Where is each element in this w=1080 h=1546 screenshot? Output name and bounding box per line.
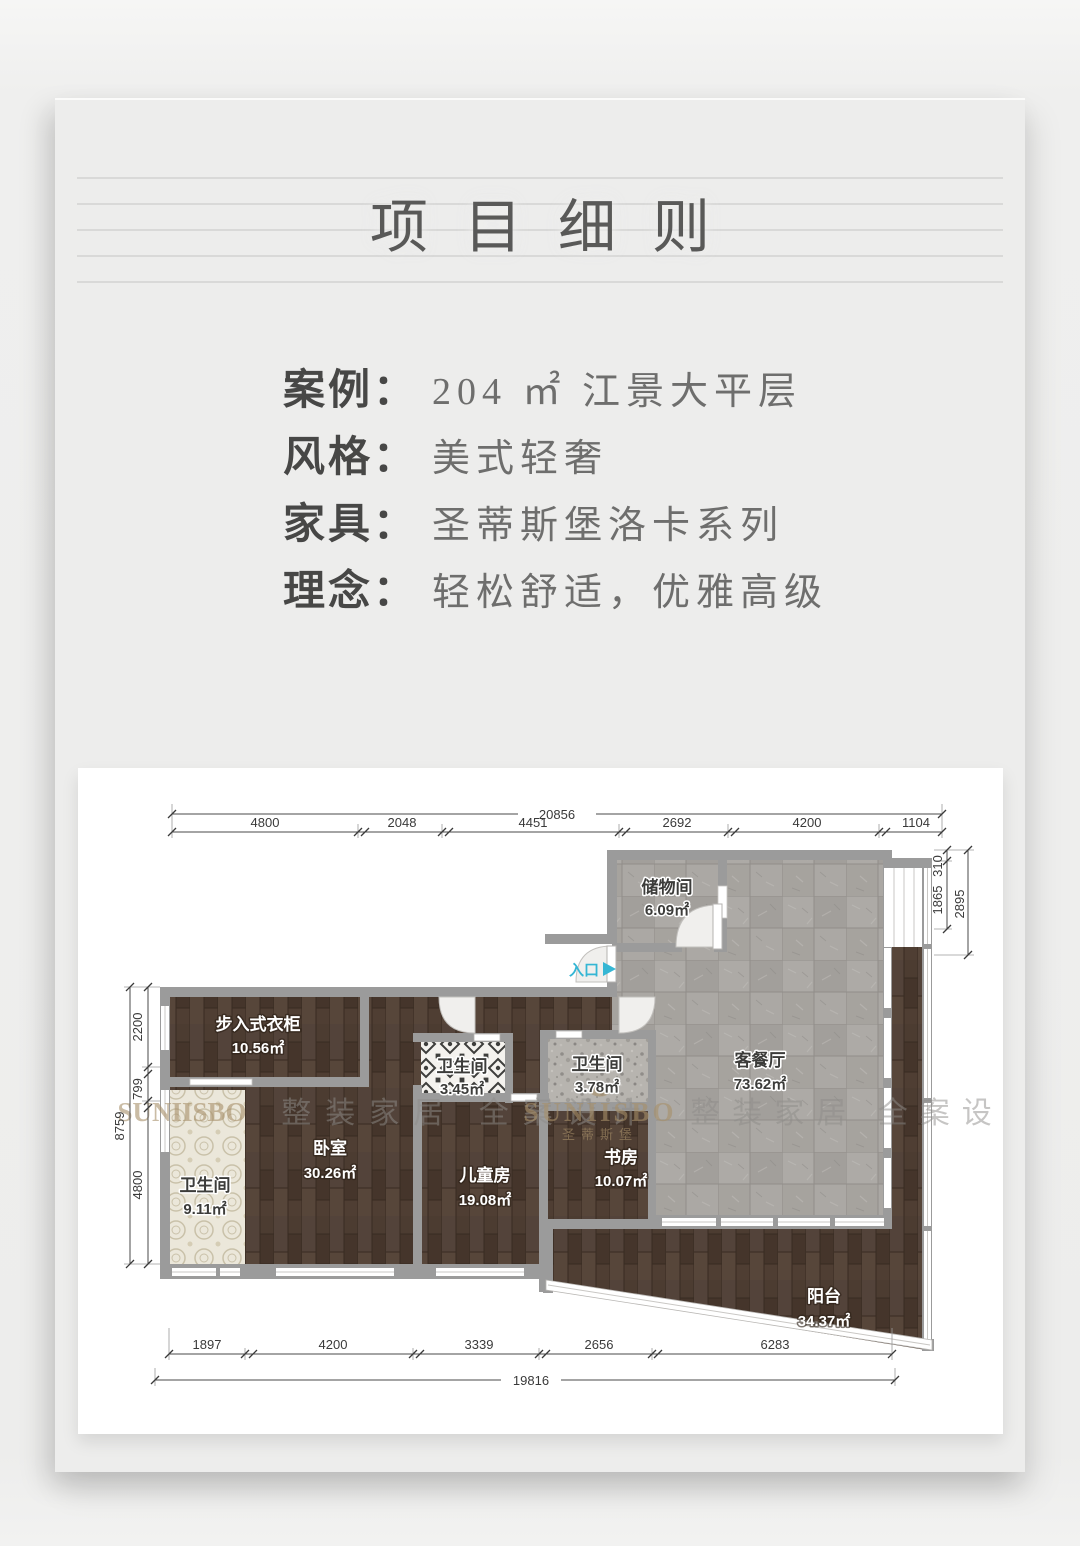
dim-bottom-seg: 2656 — [585, 1337, 614, 1352]
dim-top-seg: 2692 — [663, 815, 692, 830]
room-label-storage: 储物间 — [642, 877, 693, 897]
room-label-bath-small: 卫生间 — [437, 1056, 488, 1076]
info-row-concept: 理念： 轻松舒适，优雅高级 — [283, 567, 828, 619]
room-area-balcony: 34.37㎡ — [798, 1312, 851, 1330]
room-label-closet: 步入式衣柜 — [216, 1014, 301, 1034]
room-area-bath-master: 9.11㎡ — [183, 1200, 226, 1218]
watermark-brand-cn: 圣蒂斯堡 — [562, 1127, 638, 1142]
room-label-living: 客餐厅 — [734, 1050, 786, 1070]
dim-bottom: 1897 4200 3339 2656 6283 19816 — [151, 1328, 899, 1388]
room-area-bedroom: 30.26㎡ — [304, 1164, 357, 1182]
dim-left-seg: 799 — [130, 1078, 145, 1100]
room-area-study: 10.07㎡ — [595, 1172, 648, 1190]
info-label: 家具： — [283, 500, 418, 551]
dim-left-seg: 4800 — [130, 1171, 145, 1200]
dim-left-seg: 2200 — [130, 1013, 145, 1042]
dim-top-seg: 4200 — [793, 815, 822, 830]
info-row-furniture: 家具： 圣蒂斯堡洛卡系列 — [283, 500, 828, 552]
info-value: 204 ㎡ 江景大平层 — [432, 367, 802, 418]
room-label-bedroom: 卧室 — [313, 1138, 347, 1158]
room-area-bath-mid: 3.78㎡ — [575, 1078, 619, 1096]
dim-right: 310 1865 2895 — [930, 846, 974, 959]
page-title: 项目细则 — [55, 180, 1025, 264]
room-label-bath-master: 卫生间 — [180, 1175, 231, 1195]
dim-bottom-seg: 3339 — [465, 1337, 494, 1352]
floor-plan: SUNIISBO 整装家居 全案设计 SUNIISBO 圣蒂斯堡 整装家居 全案… — [78, 768, 1003, 1434]
info-value: 美式轻奢 — [432, 434, 608, 485]
info-row-style: 风格： 美式轻奢 — [283, 433, 828, 485]
watermark-brand-center: SUNIISBO — [523, 1097, 676, 1127]
entrance-label: 入口 — [569, 962, 599, 979]
room-area-kids: 19.08㎡ — [459, 1191, 512, 1209]
project-info: 案例： 204 ㎡ 江景大平层 风格： 美式轻奢 家具： 圣蒂斯堡洛卡系列 理念… — [283, 366, 828, 634]
dim-right-seg: 1865 — [930, 886, 945, 915]
dim-bottom-seg: 4200 — [319, 1337, 348, 1352]
dim-left-total: 8759 — [112, 1112, 127, 1141]
title-rule-line — [77, 177, 1003, 179]
room-label-kids: 儿童房 — [459, 1165, 511, 1185]
info-label: 案例： — [283, 366, 418, 417]
info-value: 圣蒂斯堡洛卡系列 — [432, 501, 784, 552]
info-value: 轻松舒适，优雅高级 — [432, 568, 828, 619]
dim-top-seg: 4451 — [519, 815, 548, 830]
info-row-case: 案例： 204 ㎡ 江景大平层 — [283, 366, 828, 418]
room-area-storage: 6.09㎡ — [645, 901, 689, 919]
room-area-bath-small: 3.45㎡ — [440, 1080, 484, 1098]
dim-bottom-seg: 1897 — [193, 1337, 222, 1352]
dim-bottom-seg: 6283 — [761, 1337, 790, 1352]
dim-top-seg: 2048 — [388, 815, 417, 830]
dim-top-seg: 1104 — [902, 815, 930, 830]
room-area-closet: 10.56㎡ — [232, 1039, 285, 1057]
dim-right-seg: 310 — [930, 855, 945, 877]
dim-top: 20856 4800 2048 4451 2692 4200 1104 — [168, 804, 946, 838]
watermark-brand-left: SUNIISBO — [117, 1097, 246, 1127]
watermark-slogan-right: 整装家居 全案设计 — [690, 1097, 1003, 1130]
room-label-study: 书房 — [604, 1147, 638, 1167]
info-label: 理念： — [283, 567, 418, 618]
dim-right-seg: 2895 — [952, 890, 967, 919]
dim-top-seg: 4800 — [251, 815, 280, 830]
floor-plan-panel: SUNIISBO 整装家居 全案设计 SUNIISBO 圣蒂斯堡 整装家居 全案… — [78, 768, 1003, 1434]
info-label: 风格： — [283, 433, 418, 484]
room-area-living: 73.62㎡ — [734, 1075, 787, 1093]
title-rule-line — [77, 281, 1003, 283]
room-label-bath-mid: 卫生间 — [572, 1054, 623, 1074]
room-label-balcony: 阳台 — [807, 1286, 841, 1306]
dim-bottom-total: 19816 — [513, 1373, 549, 1388]
project-card: 项目细则 案例： 204 ㎡ 江景大平层 风格： 美式轻奢 家具： 圣蒂斯堡洛卡… — [55, 98, 1025, 1472]
